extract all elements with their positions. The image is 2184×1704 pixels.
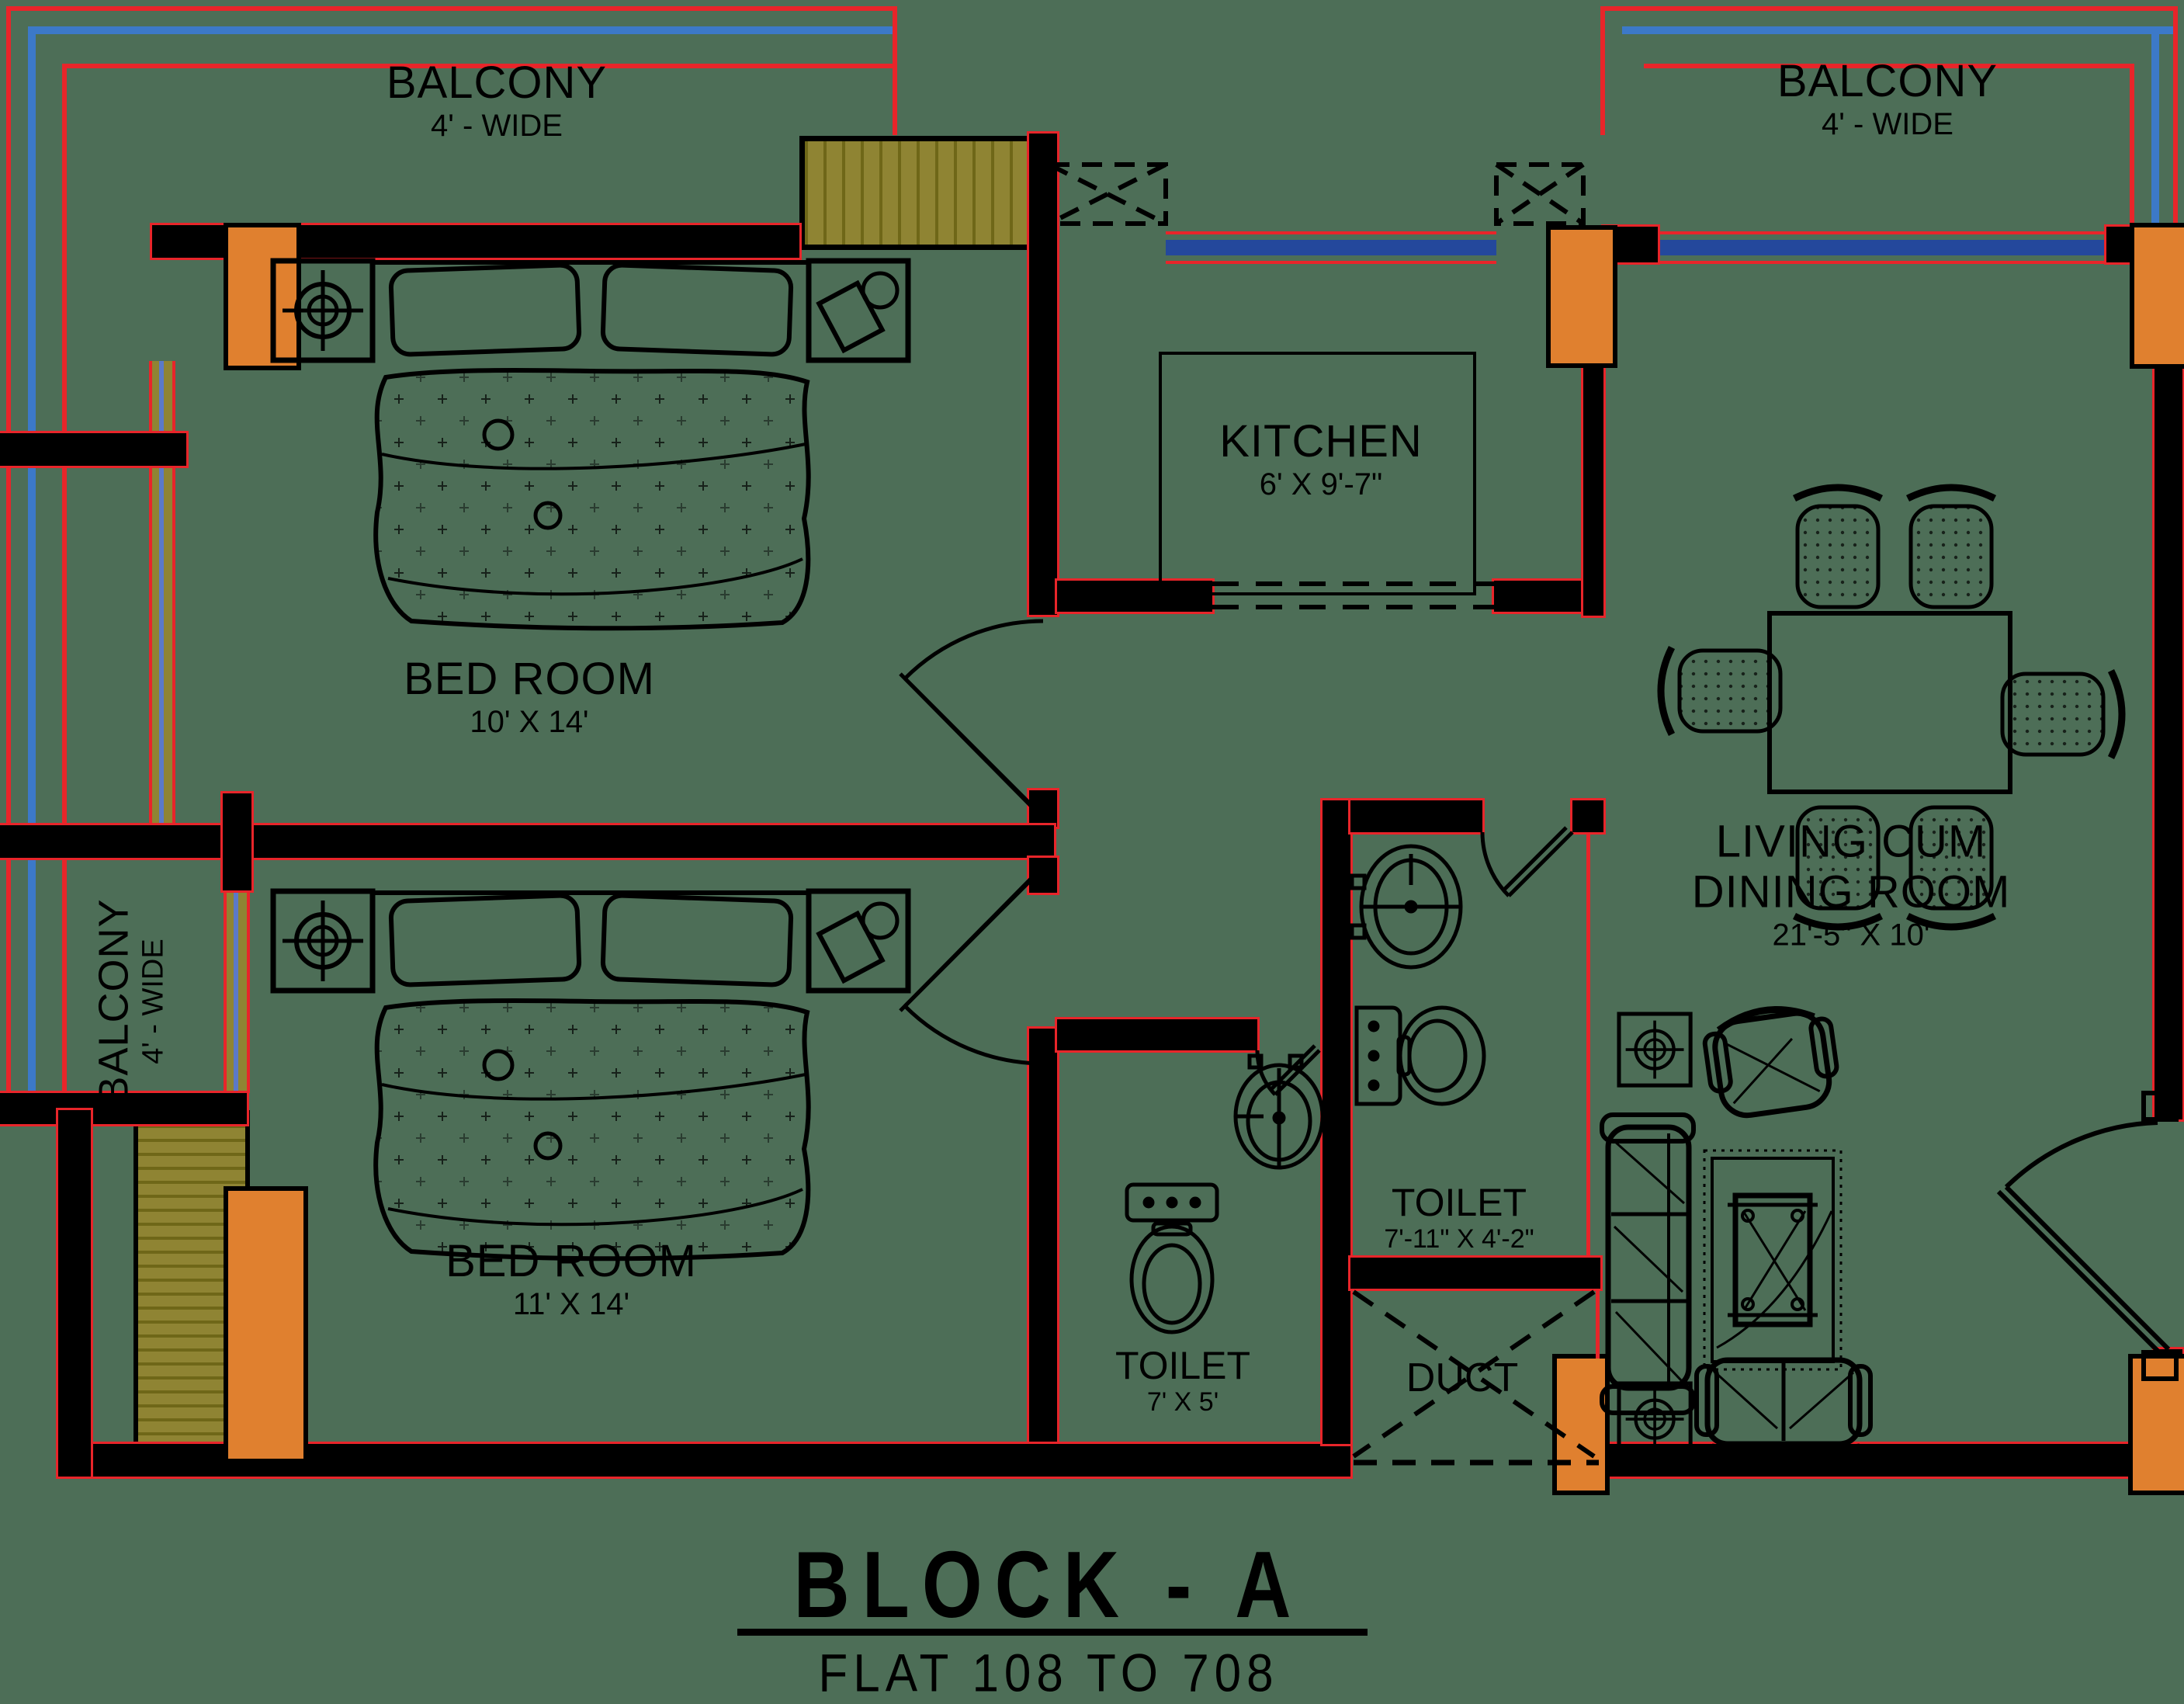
- room-label-balcony-top-left: BALCONY 4' - WIDE: [387, 58, 607, 144]
- room-name: BED ROOM: [404, 654, 655, 705]
- armchair-icon: [1701, 1001, 1842, 1120]
- toilet-wc-icon: [1127, 1185, 1217, 1332]
- side-table-icon: [1619, 1383, 1690, 1455]
- room-label-bedroom-1: BED ROOM 10' X 14': [404, 654, 655, 740]
- room-size: 7'-11" X 4'-2": [1384, 1224, 1534, 1254]
- room-name: BED ROOM: [445, 1237, 697, 1287]
- vent-box-icon: [1049, 165, 1583, 224]
- dining-table-icon: [1770, 613, 2010, 792]
- room-label-toilet-1: TOILET 7'-11" X 4'-2": [1384, 1181, 1534, 1254]
- title-underline: [737, 1629, 1368, 1636]
- room-size: 21'-5" X 10': [1692, 918, 2011, 953]
- room-size: 10' X 14': [404, 705, 655, 740]
- washbasin-icon: [1236, 1056, 1323, 1168]
- room-name: KITCHEN: [1219, 417, 1423, 467]
- dining-chair-icon: [1794, 488, 1881, 607]
- side-table-icon: [1619, 1014, 1690, 1085]
- room-name: BALCONY: [90, 898, 137, 1104]
- dining-chair-icon: [1661, 647, 1780, 734]
- bed-icon: [373, 893, 809, 1258]
- room-label-kitchen: KITCHEN 6' X 9'-7": [1219, 417, 1423, 502]
- room-name: BALCONY: [1777, 57, 1998, 107]
- door-icon: [900, 868, 1043, 1064]
- room-label-duct: DUCT: [1406, 1355, 1518, 1400]
- room-label-balcony-top-right: BALCONY 4' - WIDE: [1777, 57, 1998, 142]
- room-name: LIVING CUM: [1692, 817, 2011, 868]
- toilet-wc-icon: [1357, 1008, 1484, 1104]
- side-table-icon: [273, 891, 373, 991]
- room-name: TOILET: [1115, 1344, 1250, 1387]
- room-size: 4' - WIDE: [1777, 107, 1998, 142]
- room-name: DUCT: [1406, 1355, 1518, 1400]
- room-size: 4' - WIDE: [387, 109, 607, 144]
- bed-icon: [373, 262, 809, 628]
- room-label-toilet-2: TOILET 7' X 5': [1115, 1344, 1250, 1417]
- floor-plan: BALCONY 4' - WIDE BALCONY 4' - WIDE BALC…: [0, 0, 2184, 1704]
- dining-chair-icon: [2002, 671, 2122, 758]
- loveseat-icon: [1697, 1360, 1870, 1451]
- room-name: TOILET: [1384, 1181, 1534, 1224]
- side-table-icon: [809, 261, 908, 360]
- side-table-icon: [809, 891, 908, 991]
- washbasin-icon: [1352, 846, 1461, 967]
- main-door-icon: [1999, 1093, 2176, 1379]
- page-title: BLOCK - A: [794, 1531, 1304, 1640]
- room-size: 7' X 5': [1115, 1387, 1250, 1417]
- room-name: DINING ROOM: [1692, 868, 2011, 918]
- door-icon: [900, 621, 1043, 817]
- sofa-icon: [1602, 1115, 1693, 1413]
- side-table-icon: [273, 261, 373, 360]
- room-size: 11' X 14': [445, 1287, 697, 1322]
- dining-chair-icon: [1908, 488, 1995, 607]
- page-subtitle: FLAT 108 TO 708: [818, 1643, 1278, 1704]
- room-size: 4' - WIDE: [137, 898, 171, 1104]
- room-label-bedroom-2: BED ROOM 11' X 14': [445, 1237, 697, 1322]
- room-label-living: LIVING CUM DINING ROOM 21'-5" X 10': [1692, 817, 2011, 953]
- room-label-balcony-left: BALCONY 4' - WIDE: [90, 898, 170, 1104]
- door-icon: [1482, 828, 1572, 896]
- room-name: BALCONY: [387, 58, 607, 109]
- room-size: 6' X 9'-7": [1219, 467, 1423, 502]
